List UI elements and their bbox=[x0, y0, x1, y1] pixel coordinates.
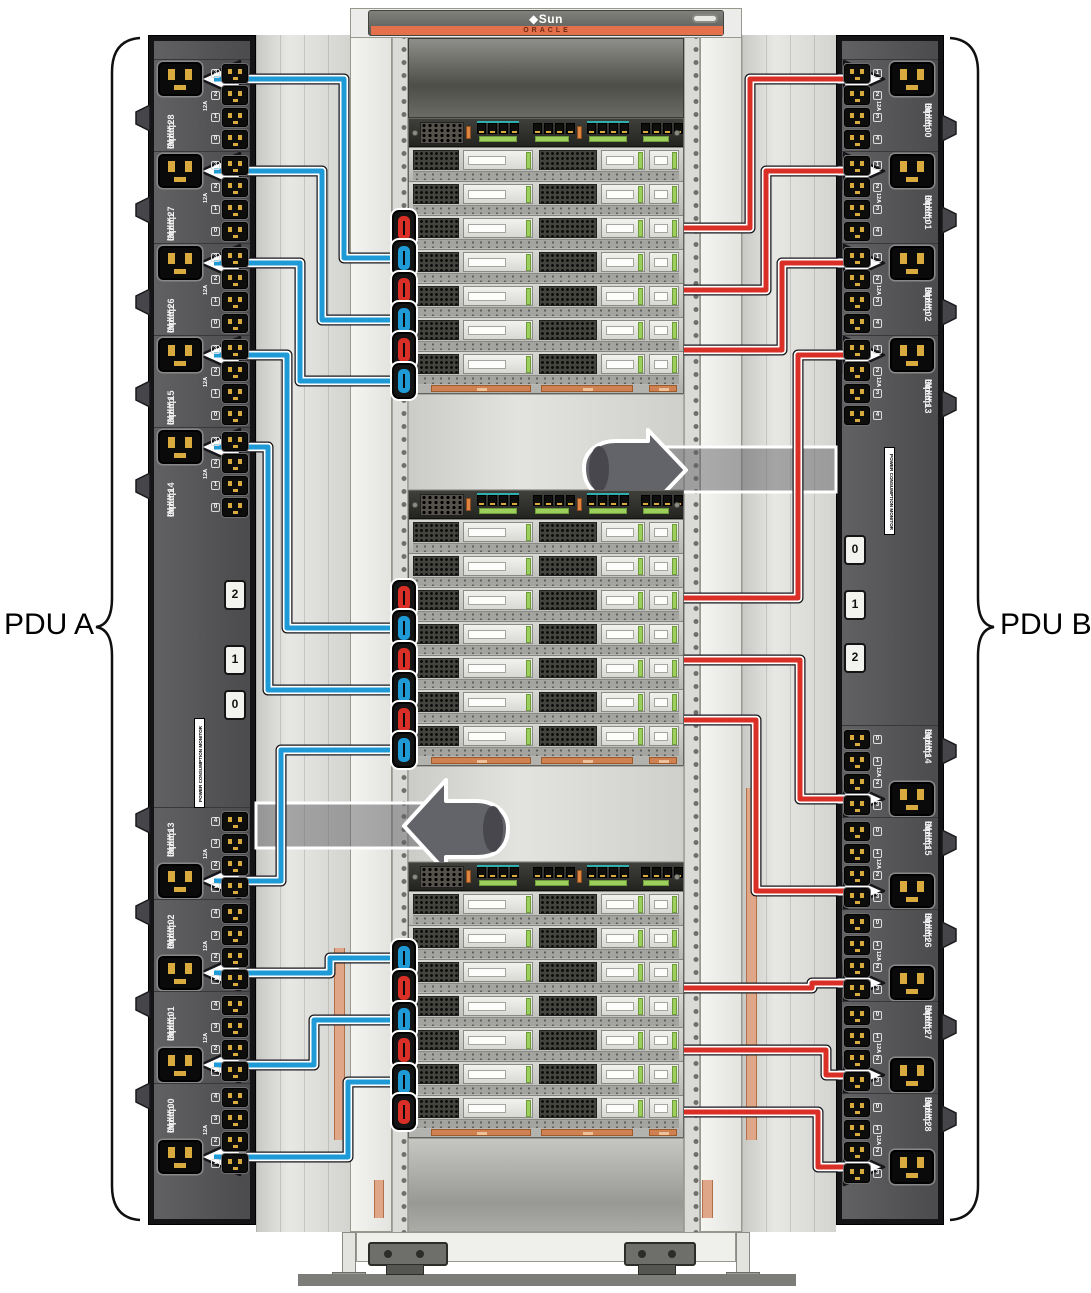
c13-outlet bbox=[844, 980, 870, 999]
pdu_a-module-separator bbox=[154, 59, 250, 60]
vent-grille bbox=[539, 184, 597, 204]
pdu_a-group-connector bbox=[158, 1048, 202, 1082]
ethernet-port bbox=[510, 867, 519, 878]
ethernet-port bbox=[544, 495, 553, 506]
server-front-plate bbox=[601, 692, 645, 712]
ethernet-port bbox=[477, 867, 486, 878]
server-row bbox=[409, 1061, 683, 1095]
green-tab bbox=[638, 1066, 643, 1083]
server-label bbox=[606, 698, 634, 707]
c13-outlet bbox=[222, 340, 248, 359]
vent-grille bbox=[539, 286, 597, 306]
server-row bbox=[409, 283, 683, 317]
green-tab bbox=[526, 728, 531, 745]
green-tab bbox=[672, 728, 677, 745]
ethernet-port bbox=[488, 123, 497, 134]
c13-outlet bbox=[222, 130, 248, 149]
drive-strip bbox=[413, 577, 679, 586]
pdu_b-module-separator bbox=[842, 1001, 938, 1002]
sun-logo-text: Sun bbox=[539, 12, 563, 26]
server-front-plate bbox=[601, 624, 645, 644]
outlet-number-tag: 0 bbox=[211, 411, 220, 420]
green-tab bbox=[672, 592, 677, 609]
pdu_a-breaker: 2 bbox=[224, 580, 246, 610]
plug-ring bbox=[398, 616, 410, 640]
vent-grille bbox=[539, 962, 597, 982]
vent-grille bbox=[413, 184, 459, 204]
server-label bbox=[468, 664, 506, 673]
green-tab bbox=[526, 322, 531, 339]
drive-strip bbox=[413, 307, 679, 316]
port-label-strip bbox=[589, 508, 627, 514]
outlet-number-tag: 3 bbox=[873, 801, 882, 810]
orange-bar-dash bbox=[659, 388, 669, 391]
pdu_b-group-connector bbox=[890, 782, 934, 816]
outlet-amps-label: 12A bbox=[202, 96, 210, 116]
pdu_b-group-label: Input 0Group 014A MAX bbox=[891, 103, 933, 149]
pdu_b-group-connector bbox=[890, 1150, 934, 1184]
server-label bbox=[606, 934, 634, 943]
ethernet-port bbox=[555, 123, 564, 134]
server-label bbox=[654, 1070, 668, 1079]
pdu_a-module-separator bbox=[154, 427, 250, 428]
pdu_a-module-separator bbox=[154, 335, 250, 336]
c13-outlet bbox=[222, 476, 248, 495]
power-consumption-monitor-label: POWER CONSUMPTION MONITOR bbox=[194, 718, 205, 808]
server-front-plate bbox=[601, 556, 645, 576]
vent-grille bbox=[413, 150, 459, 170]
green-tab bbox=[638, 626, 643, 643]
server-front-plate bbox=[463, 928, 533, 948]
vent-grille bbox=[413, 962, 459, 982]
c13-outlet bbox=[844, 1098, 870, 1117]
orange-bar-segment bbox=[649, 757, 677, 764]
outlet-number-tag: 0 bbox=[873, 1011, 882, 1020]
outlet-number-tag: 3 bbox=[211, 1023, 220, 1032]
server-front-plate bbox=[649, 692, 679, 712]
group-max-amps-label: 16A MAX bbox=[925, 1097, 933, 1121]
brace-pdu-a bbox=[96, 38, 140, 1220]
port-label-strip bbox=[643, 880, 669, 886]
c13-outlet bbox=[222, 856, 248, 875]
drive-strip bbox=[413, 1085, 679, 1094]
outlet-number-tag: 1 bbox=[873, 69, 882, 78]
server-label bbox=[654, 258, 668, 267]
ethernet-port bbox=[499, 495, 508, 506]
c13-outlet bbox=[222, 86, 248, 105]
server-row bbox=[409, 587, 683, 621]
outlet-number-tag: 3 bbox=[211, 161, 220, 170]
group-max-amps-label: 14A MAX bbox=[925, 103, 933, 127]
ethernet-port bbox=[566, 123, 575, 134]
c13-outlet bbox=[844, 156, 870, 175]
ethernet-port bbox=[499, 123, 508, 134]
ethernet-port bbox=[663, 123, 672, 134]
server-label bbox=[606, 1036, 634, 1045]
server-label bbox=[606, 664, 634, 673]
server-front-plate bbox=[649, 1030, 679, 1050]
outlet-number-tag: 0 bbox=[211, 135, 220, 144]
server-front-plate bbox=[649, 354, 679, 374]
server-label bbox=[468, 258, 506, 267]
label-pdu-b: PDU B bbox=[1000, 608, 1091, 642]
pdu-b-mounting-tab bbox=[942, 299, 956, 325]
sun-logo: ◆Sun bbox=[369, 11, 723, 27]
server-label bbox=[654, 1036, 668, 1045]
server-label bbox=[654, 698, 668, 707]
green-tab bbox=[672, 288, 677, 305]
outlet-number-tag: 4 bbox=[873, 411, 882, 420]
group-max-amps-label: 14A MAX bbox=[925, 195, 933, 219]
server-label bbox=[606, 732, 634, 741]
screw-icon bbox=[674, 874, 680, 880]
ethernet-port bbox=[477, 123, 486, 134]
bolt bbox=[384, 1250, 392, 1258]
orange-bar-dash bbox=[583, 388, 593, 391]
group-max-amps-label: 14A MAX bbox=[925, 821, 933, 845]
server-front-plate bbox=[649, 894, 679, 914]
screw-icon bbox=[674, 502, 680, 508]
green-tab bbox=[672, 626, 677, 643]
vent-grille bbox=[413, 726, 459, 746]
server-front-plate bbox=[601, 962, 645, 982]
server-label bbox=[654, 934, 668, 943]
green-tab bbox=[672, 558, 677, 575]
outlet-number-tag: 1 bbox=[873, 253, 882, 262]
server-label bbox=[468, 1104, 506, 1113]
server-front-plate bbox=[463, 1030, 533, 1050]
green-tab bbox=[526, 1100, 531, 1117]
server-label bbox=[606, 326, 634, 335]
ethernet-port bbox=[598, 123, 607, 134]
group-max-amps-label: 14A MAX bbox=[166, 401, 174, 425]
power-plug-blue bbox=[392, 610, 416, 646]
outlet-number-tag: 1 bbox=[211, 883, 220, 892]
vent-grille bbox=[413, 556, 459, 576]
c13-outlet bbox=[844, 730, 870, 749]
pdu_b-group-connector bbox=[890, 246, 934, 280]
c13-outlet bbox=[844, 844, 870, 863]
green-tab bbox=[672, 660, 677, 677]
orange-clip bbox=[577, 126, 582, 139]
port-label-strip bbox=[643, 508, 669, 514]
outlet-number-tag: 0 bbox=[873, 919, 882, 928]
drive-strip bbox=[413, 713, 679, 722]
drive-strip bbox=[413, 949, 679, 958]
ethernet-port bbox=[598, 495, 607, 506]
server-label bbox=[606, 258, 634, 267]
drive-strip bbox=[413, 1017, 679, 1026]
server-row bbox=[409, 891, 683, 925]
c13-outlet bbox=[222, 834, 248, 853]
pdu_a-group-connector bbox=[158, 864, 202, 898]
server-label bbox=[654, 1104, 668, 1113]
green-tab bbox=[672, 322, 677, 339]
server-front-plate bbox=[463, 218, 533, 238]
outlet-amps-label: 12A bbox=[202, 1028, 210, 1048]
vent-grille bbox=[413, 590, 459, 610]
c13-outlet bbox=[844, 822, 870, 841]
ethernet-port bbox=[555, 867, 564, 878]
server-label bbox=[468, 732, 506, 741]
server-front-plate bbox=[601, 522, 645, 542]
outlet-number-tag: 2 bbox=[211, 953, 220, 962]
outlet-number-tag: 3 bbox=[873, 1169, 882, 1178]
c13-outlet bbox=[222, 362, 248, 381]
pdu_b-module-separator bbox=[842, 59, 938, 60]
rack-rail-right bbox=[684, 38, 700, 1232]
c13-outlet bbox=[844, 866, 870, 885]
c13-outlet bbox=[222, 498, 248, 517]
server-label bbox=[606, 596, 634, 605]
c13-outlet bbox=[844, 178, 870, 197]
ethernet-port bbox=[566, 867, 575, 878]
vent-grille bbox=[539, 692, 597, 712]
orange-bar-segment bbox=[541, 385, 633, 392]
server-front-plate bbox=[601, 218, 645, 238]
drive-strip bbox=[413, 679, 679, 688]
orange-bar-segment bbox=[431, 1129, 531, 1136]
server-front-plate bbox=[649, 522, 679, 542]
orange-clip bbox=[577, 498, 582, 511]
screw-icon bbox=[674, 130, 680, 136]
server-front-plate bbox=[463, 252, 533, 272]
outlet-amps-label: 12A bbox=[202, 280, 210, 300]
c13-outlet bbox=[844, 130, 870, 149]
power-consumption-monitor-text: POWER CONSUMPTION MONITOR bbox=[196, 719, 206, 809]
top-filler-bezel bbox=[408, 38, 684, 118]
server-label bbox=[606, 292, 634, 301]
c13-outlet bbox=[844, 1006, 870, 1025]
server-row bbox=[409, 1027, 683, 1061]
port-label-strip bbox=[535, 880, 569, 886]
group-max-amps-label: 14A MAX bbox=[166, 833, 174, 857]
left-panel-trim bbox=[334, 948, 345, 1140]
power-plug-blue bbox=[392, 732, 416, 768]
outlet-number-tag: 4 bbox=[873, 227, 882, 236]
orange-bar-dash bbox=[659, 760, 669, 763]
server-front-plate bbox=[601, 1098, 645, 1118]
c13-outlet bbox=[222, 156, 248, 175]
vent-grille bbox=[413, 624, 459, 644]
orange-bar-dash bbox=[583, 1132, 593, 1135]
outlet-number-tag: 3 bbox=[211, 437, 220, 446]
ethernet-port bbox=[652, 867, 661, 878]
green-tab bbox=[526, 660, 531, 677]
pdu-b-mounting-tab bbox=[942, 830, 956, 856]
network-switch bbox=[409, 863, 683, 891]
pdu-b-mounting-tab bbox=[942, 1014, 956, 1040]
server-label bbox=[654, 562, 668, 571]
pdu_b-module-separator bbox=[842, 817, 938, 818]
c13-outlet bbox=[844, 64, 870, 83]
green-tab bbox=[526, 896, 531, 913]
pdu_a-module-separator bbox=[154, 151, 250, 152]
c13-outlet bbox=[844, 1120, 870, 1139]
green-tab bbox=[638, 896, 643, 913]
c13-outlet bbox=[844, 248, 870, 267]
plug-ring bbox=[398, 1038, 410, 1062]
server-label bbox=[606, 224, 634, 233]
outlet-amps-label: 12A bbox=[202, 372, 210, 392]
drive-strip bbox=[413, 239, 679, 248]
plug-ring bbox=[398, 648, 410, 672]
server-label bbox=[654, 292, 668, 301]
right-caster bbox=[624, 1242, 696, 1266]
ethernet-port bbox=[609, 123, 618, 134]
pdu-b-mounting-tab bbox=[942, 207, 956, 233]
outlet-amps-label: 12A bbox=[874, 854, 882, 874]
group-max-amps-label: 14A MAX bbox=[166, 309, 174, 333]
vent-grille bbox=[413, 692, 459, 712]
outlet-number-tag: 2 bbox=[211, 91, 220, 100]
outlet-number-tag: 1 bbox=[211, 205, 220, 214]
server-front-plate bbox=[601, 320, 645, 340]
outlet-number-tag: 0 bbox=[211, 227, 220, 236]
green-tab bbox=[672, 694, 677, 711]
green-tab bbox=[526, 694, 531, 711]
right-panel-trim bbox=[746, 788, 757, 1140]
server-label bbox=[468, 224, 506, 233]
server-front-plate bbox=[649, 962, 679, 982]
outlet-number-tag: 4 bbox=[211, 817, 220, 826]
outlet-number-tag: 4 bbox=[211, 1093, 220, 1102]
ethernet-port bbox=[663, 495, 672, 506]
c13-outlet bbox=[844, 108, 870, 127]
bottom-interior bbox=[408, 1138, 684, 1232]
bottom-trim-right bbox=[702, 1180, 713, 1218]
server-front-plate bbox=[649, 658, 679, 678]
orange-bar-dash bbox=[477, 760, 487, 763]
c13-outlet bbox=[844, 406, 870, 425]
green-tab bbox=[526, 220, 531, 237]
server-front-plate bbox=[649, 320, 679, 340]
plug-ring bbox=[398, 946, 410, 970]
orange-bar-dash bbox=[477, 1132, 487, 1135]
pdu_b-group-label: Input 0Group 114A MAX bbox=[891, 195, 933, 241]
server-front-plate bbox=[463, 894, 533, 914]
server-front-plate bbox=[463, 522, 533, 542]
server-front-plate bbox=[601, 590, 645, 610]
outlet-number-tag: 2 bbox=[211, 367, 220, 376]
c13-outlet bbox=[844, 222, 870, 241]
ethernet-port bbox=[587, 867, 596, 878]
vent-grille bbox=[413, 218, 459, 238]
green-tab bbox=[638, 998, 643, 1015]
c13-outlet bbox=[222, 1040, 248, 1059]
group-max-amps-label: 14A MAX bbox=[925, 913, 933, 937]
pdu_b-group-label: Input 2Group 816A MAX bbox=[891, 1097, 933, 1143]
green-tab bbox=[672, 964, 677, 981]
bolt bbox=[416, 1250, 424, 1258]
pdu_a-breaker: 1 bbox=[224, 645, 246, 675]
port-label-strip bbox=[535, 508, 569, 514]
plug-ring bbox=[398, 308, 410, 332]
outlet-number-tag: 2 bbox=[211, 1045, 220, 1054]
vent-grille bbox=[413, 996, 459, 1016]
pdu_b-module-separator bbox=[842, 909, 938, 910]
server-label bbox=[654, 664, 668, 673]
power-plug-red bbox=[392, 970, 416, 1006]
c13-outlet bbox=[222, 270, 248, 289]
group-max-amps-label: 14A MAX bbox=[166, 217, 174, 241]
outlet-number-tag: 1 bbox=[211, 481, 220, 490]
ethernet-port bbox=[555, 495, 564, 506]
bolt bbox=[668, 1250, 676, 1258]
power-routing-diagram: ◆Sun ORACLE PDU A PDU B Input 2Group 816… bbox=[0, 0, 1091, 1293]
server-front-plate bbox=[601, 184, 645, 204]
green-tab bbox=[638, 288, 643, 305]
bolt bbox=[638, 1250, 646, 1258]
pdu_b-breaker: 0 bbox=[844, 535, 866, 565]
power-consumption-monitor-text: POWER CONSUMPTION MONITOR bbox=[886, 448, 896, 536]
outlet-number-tag: 4 bbox=[211, 909, 220, 918]
c13-outlet bbox=[222, 996, 248, 1015]
green-tab bbox=[638, 1100, 643, 1117]
server-front-plate bbox=[463, 624, 533, 644]
green-tab bbox=[526, 964, 531, 981]
green-tab bbox=[526, 1032, 531, 1049]
c13-outlet bbox=[222, 248, 248, 267]
pdu_b-group-connector bbox=[890, 874, 934, 908]
green-tab bbox=[638, 152, 643, 169]
server-front-plate bbox=[463, 184, 533, 204]
vent-grille bbox=[539, 150, 597, 170]
outlet-number-tag: 1 bbox=[873, 161, 882, 170]
ethernet-port bbox=[652, 123, 661, 134]
ethernet-port bbox=[488, 867, 497, 878]
orange-bar-segment bbox=[541, 1129, 633, 1136]
vent-grille bbox=[539, 522, 597, 542]
green-tab bbox=[672, 998, 677, 1015]
screw-icon bbox=[412, 130, 418, 136]
vent-grille bbox=[539, 218, 597, 238]
server-row bbox=[409, 215, 683, 249]
server-label bbox=[468, 1070, 506, 1079]
server-front-plate bbox=[601, 658, 645, 678]
outlet-number-tag: 3 bbox=[211, 931, 220, 940]
server-label bbox=[654, 732, 668, 741]
c13-outlet bbox=[222, 1154, 248, 1173]
green-tab bbox=[526, 558, 531, 575]
green-tab bbox=[638, 930, 643, 947]
server-row bbox=[409, 519, 683, 553]
pdu-b-mounting-tab bbox=[942, 1106, 956, 1132]
server-row bbox=[409, 553, 683, 587]
server-label bbox=[468, 190, 506, 199]
server-front-plate bbox=[601, 726, 645, 746]
server-front-plate bbox=[649, 1098, 679, 1118]
server-label bbox=[606, 1104, 634, 1113]
green-tab bbox=[672, 896, 677, 913]
pdu_a-group-connector bbox=[158, 430, 202, 464]
server-front-plate bbox=[463, 1064, 533, 1084]
server-label bbox=[468, 630, 506, 639]
server-front-plate bbox=[463, 692, 533, 712]
server-front-plate bbox=[649, 252, 679, 272]
c13-outlet bbox=[844, 1028, 870, 1047]
vent-grille bbox=[413, 286, 459, 306]
floor-bar bbox=[298, 1274, 796, 1286]
pdu_b-module-separator bbox=[842, 243, 938, 244]
port-label-strip bbox=[643, 136, 669, 142]
vent-grille bbox=[413, 320, 459, 340]
orange-bar-dash bbox=[659, 1132, 669, 1135]
pdu_b-module-separator bbox=[842, 335, 938, 336]
outlet-number-tag: 3 bbox=[211, 1115, 220, 1124]
pdu_b-group-label: Input 1Group 514A MAX bbox=[891, 821, 933, 867]
c13-outlet bbox=[222, 314, 248, 333]
